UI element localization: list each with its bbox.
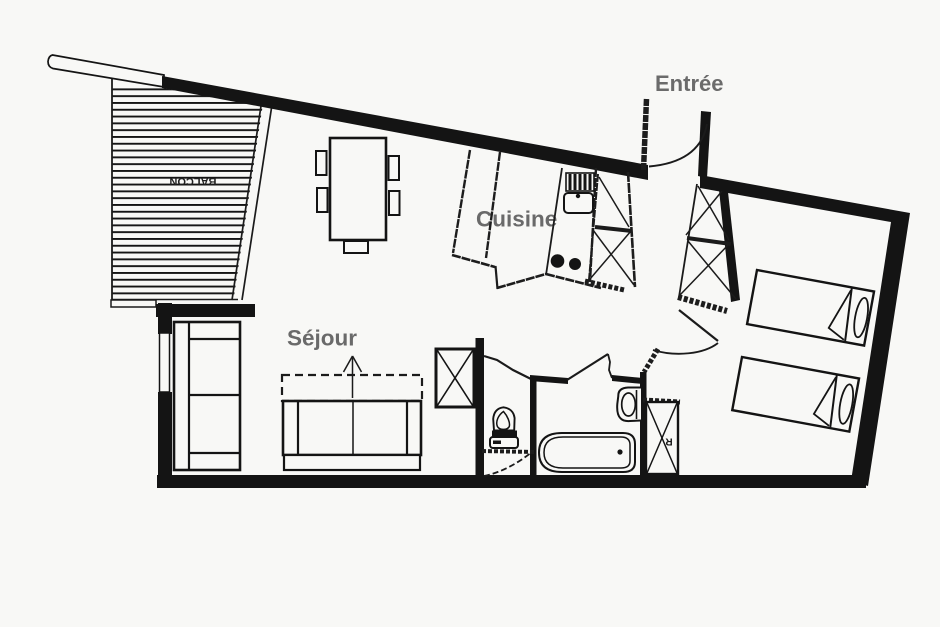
svg-text:R: R [665, 435, 673, 446]
svg-text:Séjour: Séjour [287, 326, 357, 351]
svg-text:Cuisine: Cuisine [476, 207, 557, 232]
svg-text:Entrée: Entrée [655, 71, 723, 96]
svg-text:BALCON: BALCON [169, 175, 216, 187]
